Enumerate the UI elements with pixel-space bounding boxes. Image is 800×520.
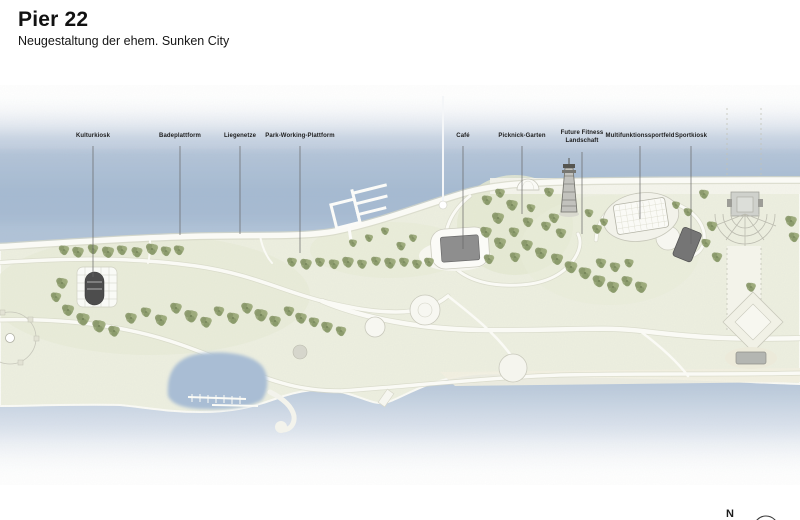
kulturkiosk-building xyxy=(77,267,117,307)
label-park-working-plattform: Park-Working-Plattform xyxy=(265,133,334,139)
site-plan-sheet: Pier 22 Neugestaltung der ehem. Sunken C… xyxy=(0,0,800,520)
master-plan-drawing xyxy=(0,0,800,520)
label-future-fitness-landschaft: Future Fitness Landschaft xyxy=(558,130,606,145)
north-label: N xyxy=(726,508,734,520)
paper-texture xyxy=(0,85,800,485)
label-cafe: Café xyxy=(456,133,469,139)
label-liegenetze: Liegenetze xyxy=(224,133,256,139)
label-badeplattform: Badeplattform xyxy=(159,133,201,139)
dock-building xyxy=(725,347,777,369)
label-multifunktionssportfeld: Multifunktionssportfeld xyxy=(606,133,675,139)
compass-circle-icon xyxy=(748,508,788,520)
label-sportkiosk: Sportkiosk xyxy=(675,133,707,139)
lagoon xyxy=(168,353,268,410)
label-kulturkiosk: Kulturkiosk xyxy=(76,133,110,139)
label-picknick-garten: Picknick-Garten xyxy=(498,133,545,139)
